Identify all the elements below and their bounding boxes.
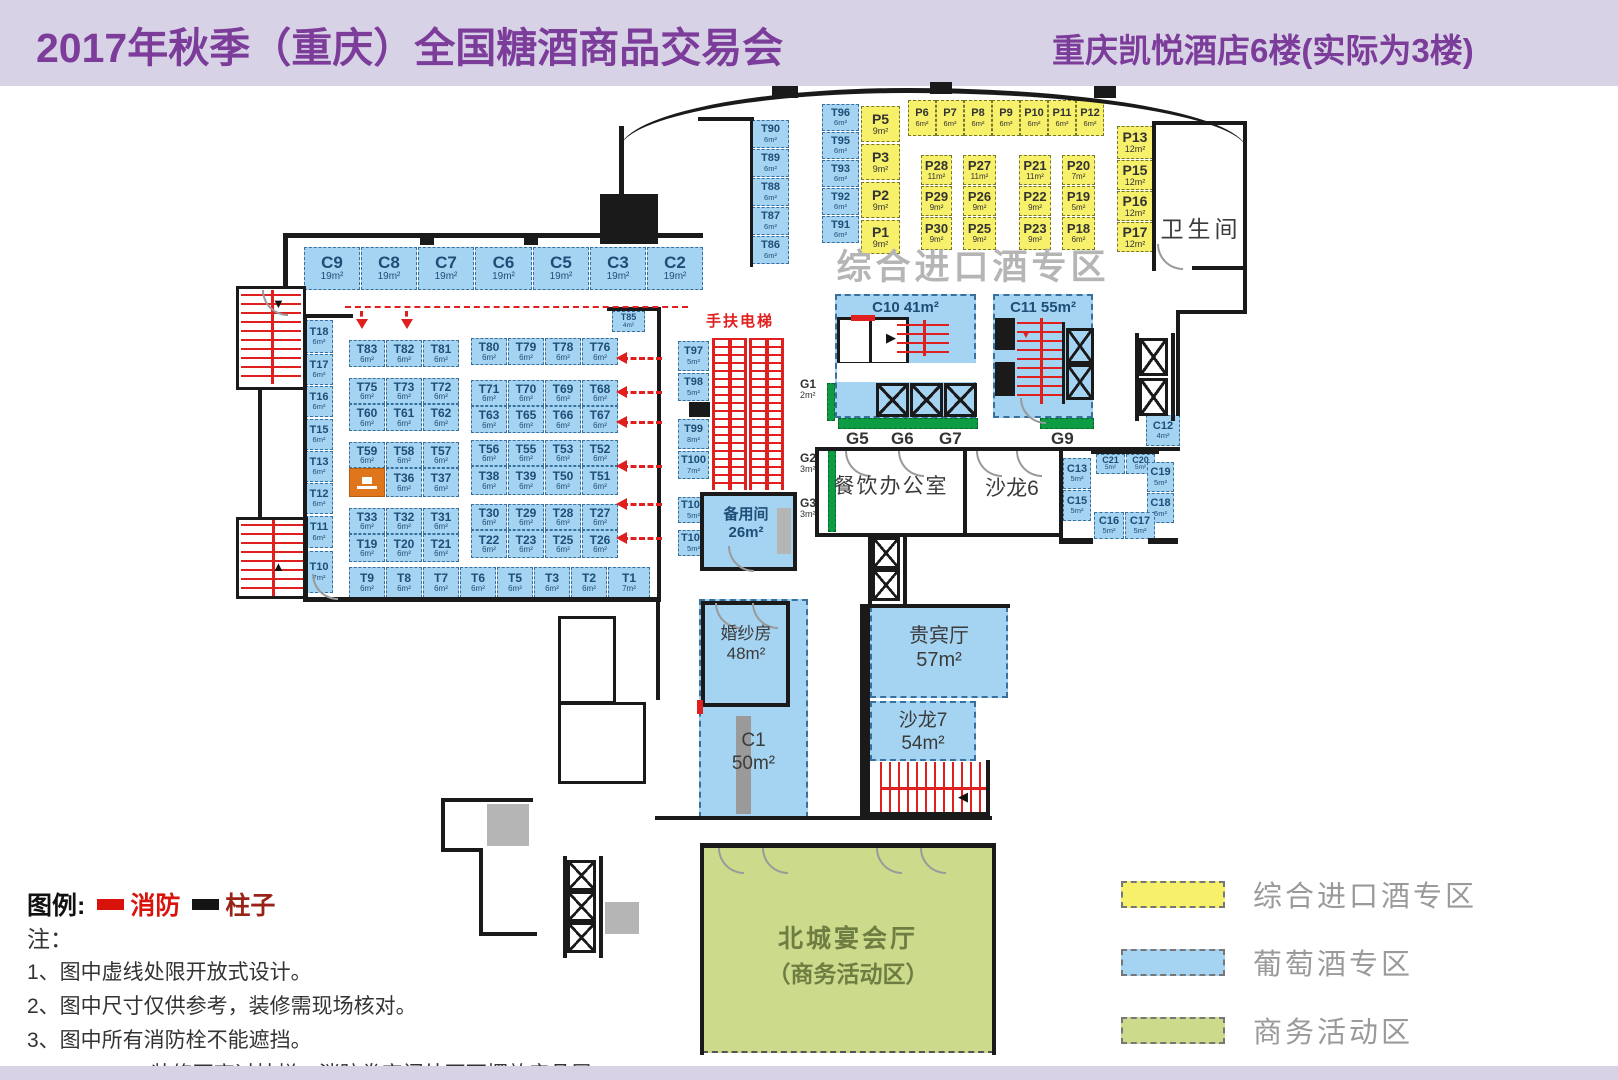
booth-T86: T866m²	[752, 236, 789, 264]
service-block	[487, 804, 529, 846]
booth-T85: T854m²	[612, 311, 645, 332]
booth-T17: T176m²	[305, 354, 333, 385]
booth-T80: T806m²	[471, 338, 507, 365]
stairs-up-arrow-icon: ▲	[272, 560, 285, 573]
legend-title: 图例:	[27, 886, 85, 922]
booth-T63: T636m²	[471, 406, 507, 433]
booth-P27: P2711m²	[963, 155, 996, 185]
fire-hydrant-swatch	[97, 899, 124, 910]
booth-T73: T736m²	[386, 378, 422, 404]
booth-P22: P229m²	[1019, 186, 1051, 216]
zone-legend-item: 葡萄酒专区	[1121, 941, 1477, 983]
wall-segment	[772, 86, 798, 98]
stairs-icon	[897, 324, 949, 354]
wall-segment	[1192, 266, 1247, 270]
booth-T91: T916m²	[822, 216, 859, 243]
booth-T12: T126m²	[305, 483, 333, 514]
booth-T56: T566m²	[471, 440, 507, 466]
elevator-shaft-icon	[567, 860, 596, 891]
ad-display-strip	[827, 383, 835, 421]
header-location: 重庆凯悦酒店6楼(实际为3楼)	[1052, 24, 1474, 72]
booth-T11: T116m²	[305, 516, 333, 548]
booth-C17: C175m²	[1125, 512, 1155, 539]
door-arc	[976, 451, 1002, 477]
booth-T28: T286m²	[545, 504, 581, 530]
booth-T70: T706m²	[508, 380, 544, 406]
escalator-icon	[712, 338, 747, 490]
stairs-down-arrow-icon: ▼	[1020, 328, 1032, 340]
booth-T38: T386m²	[471, 466, 507, 495]
wall-segment	[903, 533, 907, 605]
booth-T6: T66m²	[460, 567, 496, 598]
booth-T71: T716m²	[471, 380, 507, 406]
booth-T55: T556m²	[508, 440, 544, 466]
booth-T72: T726m²	[423, 378, 459, 404]
booth-P23: P239m²	[1019, 217, 1051, 250]
booth-T23: T236m²	[508, 530, 544, 558]
zone-c10-label: C10 41m²	[837, 299, 974, 316]
g9-label: G9	[1051, 429, 1074, 449]
booth-C8: C819m²	[361, 247, 417, 290]
wall-segment	[697, 700, 703, 714]
booth-T3: T36m²	[534, 567, 570, 598]
g6-label: G6	[891, 429, 914, 449]
door-arc	[1016, 451, 1042, 477]
room-toilet-label: 卫生间	[1157, 216, 1245, 244]
booth-P18: P186m²	[1062, 217, 1095, 250]
legend: 图例: 消防 柱子	[27, 886, 275, 922]
zone-legend-item: 商务活动区	[1121, 1009, 1477, 1051]
booth-T99: T998m²	[678, 419, 709, 449]
booth-T69: T696m²	[545, 380, 581, 406]
booth-T82: T826m²	[386, 340, 422, 367]
booth-C7: C719m²	[418, 247, 474, 290]
wall-segment	[283, 233, 288, 291]
booth-C21: C215m²	[1096, 454, 1125, 474]
column-swatch	[192, 899, 219, 910]
legend-column-label: 柱子	[225, 886, 275, 922]
booth-T57: T576m²	[423, 442, 459, 468]
booth-T16: T166m²	[305, 386, 333, 417]
flow-arrow-icon	[622, 465, 662, 468]
wall-segment	[860, 604, 1010, 608]
booth-T66: T666m²	[545, 406, 581, 433]
room-wedding-label: 婚纱房48m²	[703, 624, 789, 665]
zone-label: 商务活动区	[1253, 1009, 1413, 1051]
zone-label: 综合进口酒专区	[1253, 873, 1477, 915]
wall-segment	[1176, 310, 1247, 314]
banquet-hall-subtitle: （商务活动区）	[704, 955, 992, 989]
wall-segment	[1148, 538, 1178, 544]
wall-segment	[698, 117, 754, 121]
wall-segment	[283, 233, 703, 238]
notes-title: 注：	[27, 920, 627, 954]
wall-segment	[995, 362, 1015, 396]
booth-P26: P269m²	[963, 186, 996, 216]
legend-fire-label: 消防	[130, 886, 180, 922]
stairs-right-arrow-icon: ▶	[886, 331, 896, 344]
header: 2017年秋季（重庆）全国糖酒商品交易会 重庆凯悦酒店6楼(实际为3楼)	[0, 0, 1618, 86]
booth-P19: P195m²	[1062, 186, 1095, 216]
booth-T7: T76m²	[423, 567, 459, 598]
booth-T33: T336m²	[349, 508, 385, 534]
g7-label: G7	[939, 429, 962, 449]
booth-T21: T216m²	[423, 534, 459, 562]
wall-segment	[420, 238, 434, 245]
zone-legend: 综合进口酒专区葡萄酒专区商务活动区广告展示位	[1121, 873, 1477, 1080]
wall-segment	[851, 315, 875, 321]
wall-segment	[524, 238, 538, 245]
stairs-icon	[880, 762, 986, 812]
booth-T22: T226m²	[471, 530, 507, 558]
g3-label: G33m²	[800, 497, 816, 520]
booth-T36: T366m²	[386, 468, 422, 497]
booth-T87: T876m²	[752, 207, 789, 235]
booth-T25: T256m²	[545, 530, 581, 558]
booth-T75: T756m²	[349, 378, 385, 404]
flow-arrow-icon	[622, 503, 662, 506]
wall-segment	[657, 307, 661, 600]
flow-arrow-icon	[622, 391, 662, 394]
wall-segment	[441, 798, 445, 852]
wall-segment	[930, 82, 952, 94]
wall-segment	[1152, 121, 1247, 125]
elevator-shaft-icon	[872, 569, 900, 601]
elevator-shaft-icon	[1139, 378, 1168, 416]
booth-T13: T136m²	[305, 451, 333, 482]
booth-T79: T796m²	[508, 338, 544, 365]
booth-T18: T186m²	[305, 320, 333, 353]
room-catering-office-label: 餐饮办公室	[818, 474, 964, 499]
booth-T30: T306m²	[471, 504, 507, 530]
wall-segment	[1176, 310, 1180, 416]
wall-segment	[1091, 451, 1159, 454]
footer-strip	[0, 1066, 1618, 1080]
zone-label: 葡萄酒专区	[1253, 941, 1413, 983]
note-item: 1、图中虚线处限开放式设计。	[27, 956, 627, 986]
booth-T37: T376m²	[423, 468, 459, 497]
g2-label: G23m²	[800, 452, 816, 475]
sponsor-logo-booth	[349, 468, 385, 497]
room-spare-label: 备用间26m²	[703, 506, 789, 542]
booth-T53: T536m²	[545, 440, 581, 466]
booth-T5: T56m²	[497, 567, 533, 598]
booth-P15: P1512m²	[1117, 160, 1153, 190]
booth-C19: C195m²	[1147, 462, 1174, 492]
wall-segment	[1243, 288, 1247, 312]
booth-T65: T656m²	[508, 406, 544, 433]
import-wine-zone-title: 综合进口酒专区	[818, 247, 1128, 289]
booth-P16: P1612m²	[1117, 191, 1153, 221]
escalator-label: 手扶电梯	[706, 313, 774, 331]
note-item: 2、图中尺寸仅供参考，装修需现场核对。	[27, 990, 627, 1020]
booth-T83: T836m²	[349, 340, 385, 367]
booth-T81: T816m²	[423, 340, 459, 367]
booth-T39: T396m²	[508, 466, 544, 495]
room-outline	[558, 702, 646, 784]
ad-display-strip	[1040, 418, 1094, 429]
wall-segment	[1059, 538, 1093, 544]
booth-T98: T985m²	[678, 373, 709, 401]
booth-C5: C519m²	[533, 247, 589, 290]
elevator-shaft-icon	[910, 383, 943, 417]
wall-segment	[1152, 121, 1156, 271]
wall-segment	[869, 317, 872, 365]
booth-T2: T26m²	[571, 567, 607, 598]
booth-T62: T626m²	[423, 404, 459, 431]
booth-T61: T616m²	[386, 404, 422, 431]
booth-T50: T506m²	[545, 466, 581, 495]
room-outline	[558, 616, 616, 704]
elevator-shaft-icon	[872, 537, 900, 569]
zone-legend-item: 综合进口酒专区	[1121, 873, 1477, 915]
booth-T89: T896m²	[752, 149, 789, 177]
note-item: 3、图中所有消防栓不能遮挡。	[27, 1024, 627, 1054]
booth-T32: T326m²	[386, 508, 422, 534]
wall-segment	[303, 597, 661, 602]
wall-segment	[656, 600, 660, 700]
zone-swatch	[1121, 949, 1225, 976]
booth-C13: C135m²	[1063, 458, 1091, 489]
wall-segment	[303, 314, 353, 318]
wall-segment	[992, 843, 996, 1055]
elevator-shaft-icon	[1139, 338, 1168, 376]
booth-T93: T936m²	[822, 160, 859, 187]
elevator-shaft-icon	[876, 383, 909, 417]
wall-segment	[860, 604, 870, 816]
room-salon7-label: 沙龙754m²	[870, 710, 976, 756]
elevator-shaft-icon	[567, 891, 596, 922]
booth-T29: T296m²	[508, 504, 544, 530]
booth-P20: P207m²	[1062, 155, 1095, 185]
booth-T19: T196m²	[349, 534, 385, 562]
booth-T97: T975m²	[678, 341, 709, 371]
g1-label: G12m²	[800, 378, 816, 401]
wall-segment	[837, 363, 978, 382]
booth-T15: T156m²	[305, 419, 333, 450]
wall-segment	[1171, 333, 1175, 421]
zone-c11-label: C11 55m²	[995, 299, 1091, 316]
page-title: 2017年秋季（重庆）全国糖酒商品交易会	[36, 14, 783, 74]
wall-segment	[1094, 86, 1116, 98]
wall-segment	[441, 848, 483, 852]
flow-arrow-icon	[622, 537, 662, 540]
notes: 注： 1、图中虚线处限开放式设计。 2、图中尺寸仅供参考，装修需现场核对。 3、…	[27, 920, 627, 1080]
wall-segment	[995, 318, 1015, 350]
room-c1-label: C150m²	[699, 730, 808, 776]
booth-P29: P299m²	[921, 186, 952, 216]
wall-segment	[986, 760, 990, 817]
elevator-shaft-icon	[1066, 364, 1094, 400]
wall-segment	[619, 126, 624, 196]
wall-segment	[750, 117, 753, 267]
elevator-shaft-icon	[944, 383, 977, 417]
booth-C3: C319m²	[590, 247, 646, 290]
ad-display-strip	[838, 418, 978, 429]
zone-swatch	[1121, 1017, 1225, 1044]
booth-P30: P309m²	[921, 217, 952, 250]
flow-arrow-icon	[622, 357, 662, 360]
booth-C16: C165m²	[1094, 512, 1124, 539]
booth-T58: T586m²	[386, 442, 422, 468]
booth-P28: P2811m²	[921, 155, 952, 185]
banquet-hall-name: 北城宴会厅	[704, 919, 992, 955]
booth-P2: P29m²	[861, 182, 900, 218]
door-arc	[1157, 244, 1183, 270]
booth-T8: T86m²	[386, 567, 422, 598]
flow-arrow-icon	[622, 421, 662, 424]
zone-swatch	[1121, 881, 1225, 908]
open-design-dashed-line	[345, 306, 688, 308]
g5-label: G5	[846, 429, 869, 449]
wall-segment	[815, 533, 1063, 537]
booth-T78: T786m²	[545, 338, 581, 365]
wall-segment	[1062, 322, 1065, 404]
booth-P21: P2111m²	[1019, 155, 1051, 185]
booth-T100: T1007m²	[678, 451, 709, 479]
booth-T20: T206m²	[386, 534, 422, 562]
booth-T1: T17m²	[608, 567, 650, 598]
floor-plan-page: 2017年秋季（重庆）全国糖酒商品交易会 重庆凯悦酒店6楼(实际为3楼) C10…	[0, 0, 1618, 1080]
wall-segment	[700, 843, 704, 1055]
room-vip-hall-label: 贵宾厅57m²	[870, 624, 1008, 672]
wall-segment	[655, 816, 992, 820]
booth-C2: C219m²	[647, 247, 703, 290]
booth-C9: C919m²	[304, 247, 360, 290]
entry-arrow-icon	[405, 311, 408, 325]
door-arc	[1020, 398, 1046, 424]
wall-segment	[258, 388, 262, 520]
booth-T9: T96m²	[349, 567, 385, 598]
booth-C15: C155m²	[1063, 490, 1091, 521]
booth-T88: T886m²	[752, 178, 789, 206]
booth-T31: T316m²	[423, 508, 459, 534]
wall-segment	[689, 402, 710, 417]
stairs-left-arrow-icon: ◀	[958, 790, 968, 803]
wall-segment	[700, 843, 996, 848]
booth-P25: P259m²	[963, 217, 996, 250]
zone-banquet-hall: 北城宴会厅 （商务活动区）	[702, 845, 994, 1053]
booth-T92: T926m²	[822, 188, 859, 215]
booth-T60: T606m²	[349, 404, 385, 431]
elevator-shaft-icon	[1066, 328, 1094, 364]
escalator-icon	[749, 338, 784, 490]
wall-segment	[303, 314, 307, 600]
room-salon6-label: 沙龙6	[964, 476, 1060, 501]
entry-arrow-icon	[360, 311, 363, 325]
wall-segment	[441, 798, 533, 802]
booth-T59: T596m²	[349, 442, 385, 468]
booth-C6: C619m²	[475, 247, 532, 290]
